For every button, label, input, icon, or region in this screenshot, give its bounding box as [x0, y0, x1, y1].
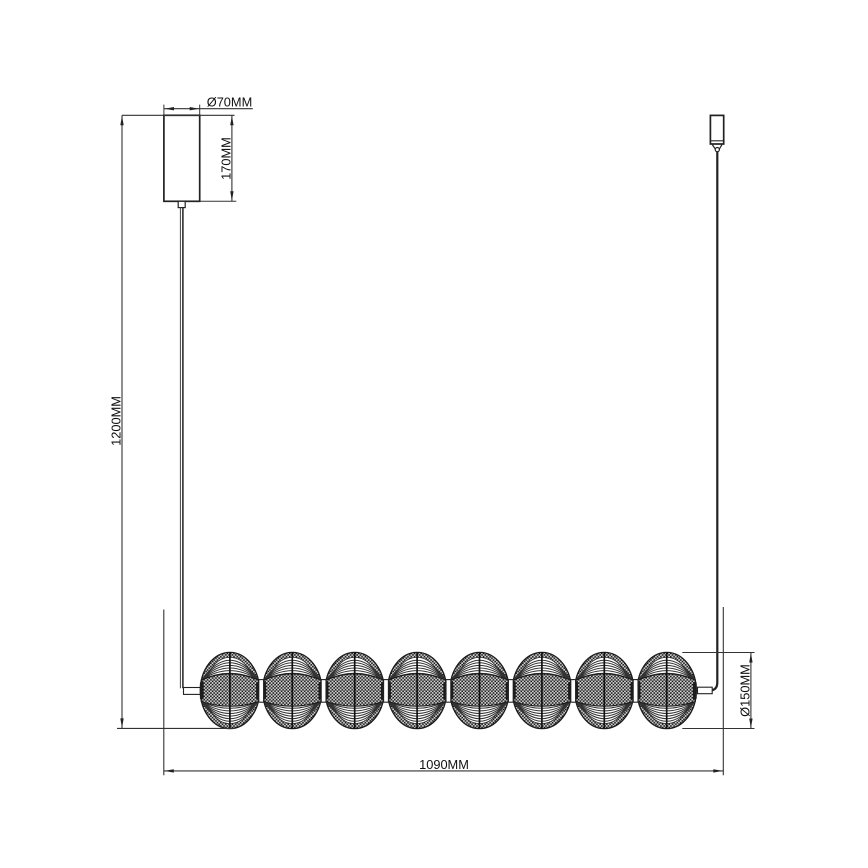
svg-text:170MM: 170MM: [219, 137, 234, 180]
svg-text:1200MM: 1200MM: [108, 396, 123, 446]
svg-text:Ø150MM: Ø150MM: [738, 664, 753, 717]
svg-text:1090MM: 1090MM: [419, 757, 469, 772]
svg-text:Ø70MM: Ø70MM: [207, 95, 253, 110]
